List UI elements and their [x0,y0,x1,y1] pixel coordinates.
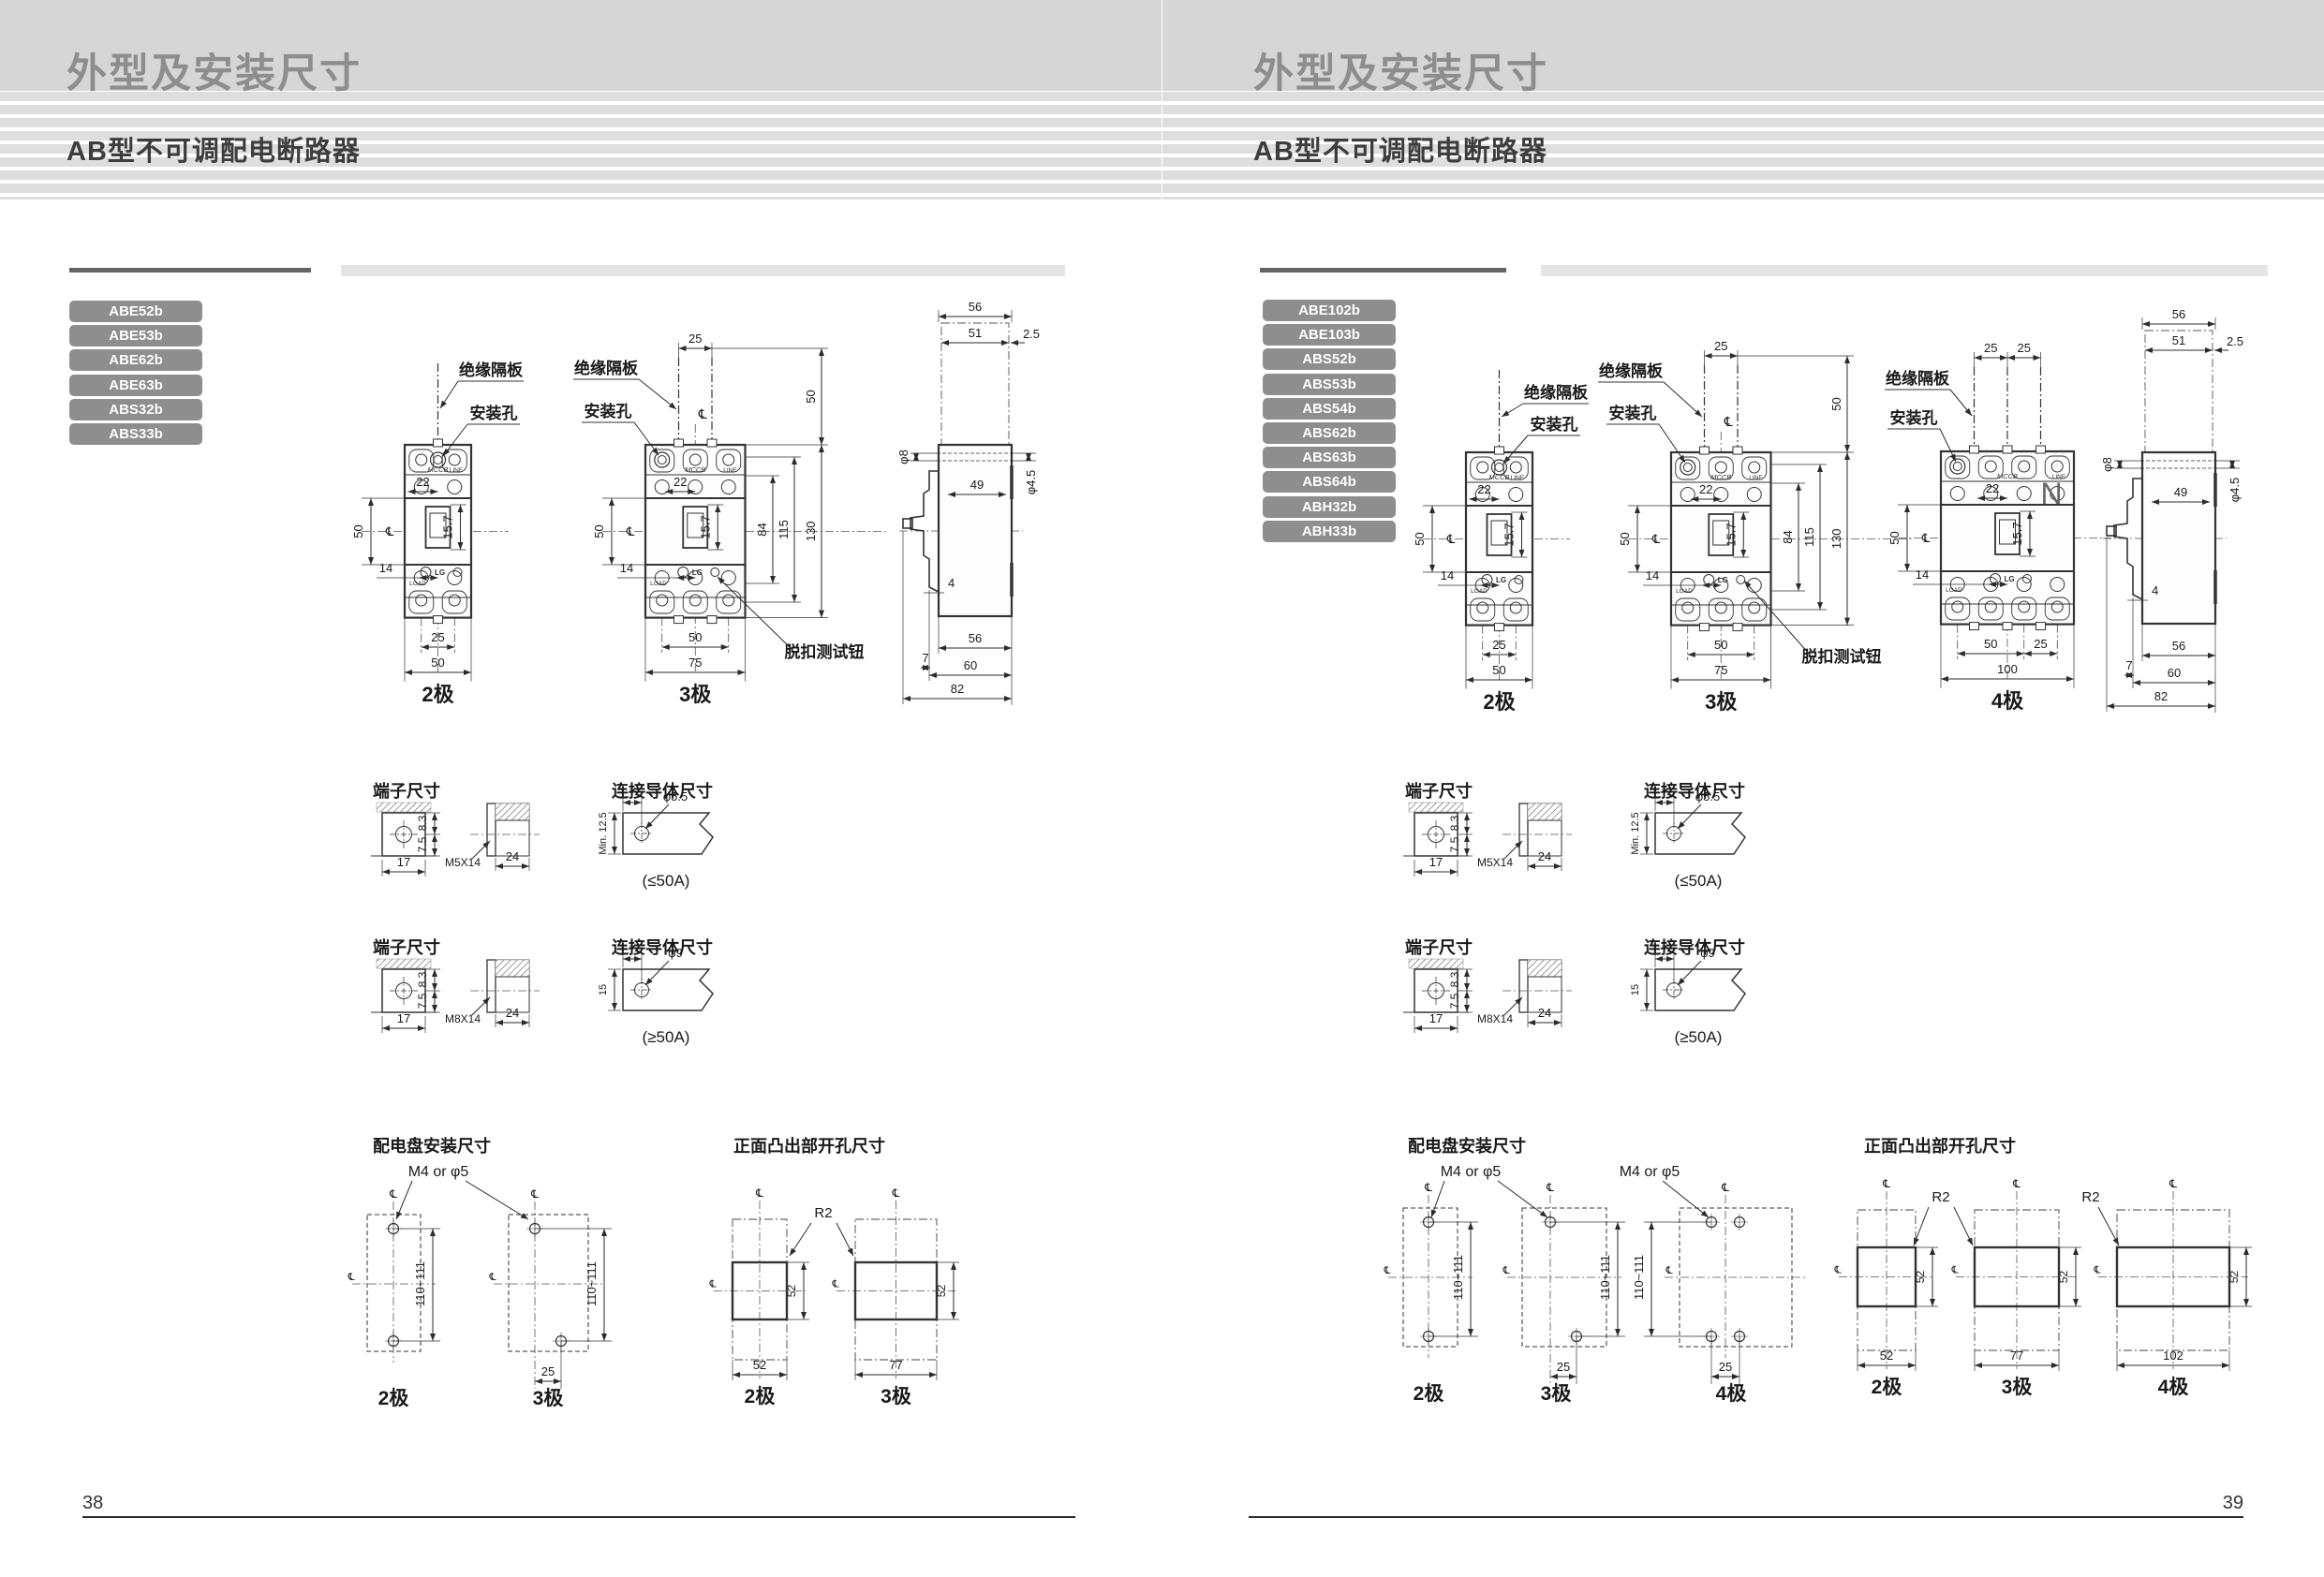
drawing-rect [1733,447,1742,454]
conductor-size-drawing: 7φ915(≥50A) [1630,943,1745,1046]
dim-label: 14 [1441,568,1454,582]
load-marking: LOAD [1471,588,1488,595]
breaker-front-4pole: 2525MCCBLINELOADLGN2250℄1415.750251004极 [1887,341,2111,713]
centerline-symbol: ℄ [831,1279,838,1290]
leader-line [1502,404,1523,417]
conductor-size-drawing: 7φ5.5Min. 12.5(≤50A) [1630,787,1745,890]
conductor-plate [1655,813,1745,854]
dim-label: 75 [688,656,702,670]
centerline-symbol: ℄ [698,406,707,421]
dim-label: 77 [889,1358,902,1372]
dim-label: 25 [1557,1360,1570,1374]
centerline-symbol: ℄ [530,1187,539,1201]
dim-label: 50 [1714,638,1727,652]
leader-line [1954,1207,1973,1245]
radius-label: R2 [1932,1189,1949,1205]
line-marking: LINE [450,467,464,474]
leader-line [1498,1181,1547,1217]
callout-label: 安装孔 [470,404,518,422]
hole-spec-label: φ9 [1700,946,1715,960]
panel-mount-2pole-left: ℄℄110~1112极 [347,1187,440,1409]
dim-label: 15.7 [1502,523,1517,546]
centerline-symbol: ℄ [2093,1265,2100,1276]
load-marking: LOAD [1946,587,1962,594]
drawing-rect [2145,331,2213,452]
conductor-size-drawing: 7φ915(≥50A) [598,943,713,1046]
callout-label: 绝缘隔板 [1886,369,1950,388]
dim-label: 15 [1630,984,1641,995]
drawing-rect [1495,624,1504,631]
dim-label: 75 [1714,663,1727,677]
conductor-plate [1655,969,1745,1010]
dim-label: 15.7 [441,515,455,538]
dim-label: 51 [969,326,982,340]
dim-label: 8.3 [416,815,429,831]
section-title: 端子尺寸 [373,937,440,957]
centerline-symbol: ℄ [708,1279,716,1290]
load-marking: LOAD [650,581,667,587]
screw-spec-label: M8X14 [1477,1012,1513,1025]
current-rating-note: (≥50A) [1675,1028,1723,1046]
dim-label: 84 [1781,530,1795,543]
breaker-body-side [2142,452,2215,624]
panel-mount-section-left: 配电盘安装尺寸M4 or φ5 [373,1136,528,1219]
drawing-rect [434,439,443,447]
dim-label: 110~111 [1632,1255,1646,1300]
centerline-symbol: ℄ [755,1186,763,1200]
current-rating-note: (≤50A) [643,872,690,890]
dim-label: 25 [2018,341,2031,355]
panel-mount-4pole: ℄℄110~111254极 [1632,1181,1807,1405]
drawing-rect [1495,447,1504,454]
screw-spec-label: M5X14 [1477,856,1513,869]
drawing-rect [1519,803,1528,856]
cutout-2pole-left: ℄℄52522极 [708,1186,809,1408]
centerline-symbol: ℄ [488,1272,496,1283]
pole-caption: 3极 [1705,690,1738,714]
drawing-rect [707,616,717,624]
pole-caption: 2极 [1414,1383,1445,1405]
dim-label: 7 [629,943,636,956]
dim-label: φ8 [896,450,910,464]
pole-caption: 4极 [1716,1383,1748,1405]
line-marking: LINE [1749,475,1763,481]
centerline-symbol: ℄ [385,524,394,538]
dim-label: 130 [1829,528,1843,549]
dim-label: 7 [922,651,928,665]
dim-label: 25 [1984,341,1997,355]
section-title: 端子尺寸 [373,781,440,801]
radius-label: R2 [2081,1189,2099,1205]
pole-caption: 2极 [1483,690,1516,714]
leader-line [1950,390,1972,416]
pole-caption: 2极 [745,1386,777,1408]
centerline-symbol: ℄ [2012,1177,2021,1190]
centerline-symbol: ℄ [892,1186,900,1200]
drawing-rect [674,439,684,447]
drawing-rect [1528,803,1562,820]
centerline-symbol: ℄ [1446,532,1456,546]
centerline-symbol: ℄ [1950,1265,1958,1276]
hole-spec-label: φ9 [668,946,683,960]
drawing-rect [674,616,684,624]
dim-label: 56 [2172,307,2185,321]
load-marking: LOAD [1676,588,1693,595]
dim-label: 52 [2057,1271,2070,1284]
dim-label: 22 [416,475,429,489]
callout-label: 绝缘隔板 [574,359,639,377]
centerline-symbol: ℄ [389,1187,397,1201]
dim-label: 17 [1429,1011,1443,1025]
terminal-size-drawing: 178.37.5M5X1424 [371,803,540,877]
dim-label: 14 [1916,567,1929,582]
drawing-rect [707,439,717,447]
mccb-marking: MCCB [1710,473,1731,481]
dim-label: 14 [379,561,392,575]
centerline-symbol: ℄ [1424,1181,1432,1194]
breaker-body-side [939,445,1012,616]
section-title: 配电盘安装尺寸 [373,1136,491,1156]
dim-label: 7 [1662,787,1668,800]
drawing-rect [2003,623,2012,630]
conductor-size-drawing: 7φ5.5Min. 12.5(≤50A) [598,787,713,890]
dim-label: 15 [598,984,609,995]
dim-label: 4 [948,576,955,590]
mccb-marking: MCCB [1488,473,1509,481]
centerline-symbol: ℄ [1921,531,1931,545]
dim-label: 25 [431,630,444,644]
panel-mount-3pole-right: ℄℄110~111253极 [1502,1181,1625,1405]
dim-label: 7.5 [1448,836,1461,852]
neutral-marking: N [2040,477,2062,510]
lg-logo: LG [2004,575,2014,583]
dim-label: 82 [951,682,964,696]
panel-mount-2pole-right: ℄℄110~1112极 [1383,1181,1478,1405]
drawing-rect [1409,803,1463,812]
dim-label: 7.5 [416,836,429,852]
mccb-marking: MCCB [685,465,705,474]
dim-label: 24 [506,849,519,863]
dim-label: 110~111 [585,1261,599,1306]
drawing-rect [496,803,529,820]
drawing-rect [941,323,1009,445]
dim-label: 2.5 [2227,334,2243,348]
drawing-rect [496,960,529,977]
drawing-rect [434,616,443,624]
dim-label: 7 [629,787,636,800]
side-profile [910,471,939,592]
pole-caption: 3极 [881,1386,912,1408]
screw-spec-label: M4 or φ5 [1620,1164,1680,1180]
drawing-rect [2036,623,2046,630]
drawing-rect [509,1215,588,1351]
dim-label: 110~111 [1451,1255,1465,1300]
dim-label: 50 [1887,531,1902,544]
dim-label: 15.7 [2010,522,2024,545]
current-rating-note: (≥50A) [643,1028,690,1046]
leader-line [396,1181,412,1219]
mccb-marking: MCCB [427,465,448,474]
dim-label: 50 [804,390,818,403]
conductor-plate [623,969,713,1010]
pole-caption: 4极 [1991,689,2024,713]
section-title: 正面凸出部开孔尺寸 [733,1136,885,1156]
dim-label: φ8 [2100,457,2114,472]
dim-label: 50 [431,656,444,670]
dim-label: 110~111 [413,1261,427,1306]
callout-label: 安装孔 [1531,415,1578,434]
dim-label: 22 [674,475,687,489]
dim-label: 49 [970,478,984,492]
dim-label: 25 [1714,339,1727,353]
drawing-rect [377,959,431,968]
dim-label: 14 [620,561,633,575]
dim-label: 50 [592,524,606,538]
dim-label: 52 [2228,1271,2241,1284]
cutout-section-right: 正面凸出部开孔尺寸R2R2 [1864,1136,2119,1245]
screw-spec-label: M8X14 [445,1012,481,1025]
terminal-size-drawing: 178.37.5M8X1424 [371,959,540,1033]
dim-label: 50 [1829,397,1843,410]
callout-label: 脱扣测试钮 [785,642,865,661]
screw-spec-label: M5X14 [445,856,481,869]
pole-caption: 3极 [679,683,712,706]
dim-label: 22 [1986,481,1999,495]
dim-label: 22 [1699,482,1712,496]
mccb-marking: MCCB [1997,472,2018,480]
centerline-symbol: ℄ [2169,1177,2177,1190]
lg-logo: LG [692,568,703,577]
catalog-spread: 外型及安装尺寸 AB型不可调配电断路器 ABE52bABE53bABE62bAB… [0,0,2324,1577]
dim-label: 51 [2172,333,2185,347]
dim-label: 60 [2168,666,2181,680]
load-marking: LOAD [409,581,426,587]
pole-caption: 3极 [1541,1383,1573,1405]
panel-mount-section-right: 配电盘安装尺寸M4 or φ5M4 or φ5 [1408,1136,1709,1217]
centerline-symbol: ℄ [1651,532,1661,546]
hole-spec-label: φ5.5 [663,789,688,803]
radius-label: R2 [814,1205,832,1221]
leader-line [639,379,676,409]
dim-label: 7.5 [416,993,429,1009]
dim-label: 7 [2125,658,2132,672]
lg-logo: LG [435,568,445,577]
dim-label: 130 [804,521,818,541]
centerline-symbol: ℄ [1833,1265,1841,1276]
centerline-symbol: ℄ [347,1272,354,1283]
drawing-rect [1970,446,1979,453]
terminal-size-drawing: 178.37.5M8X1424 [1403,959,1572,1033]
drawing-rect [1528,960,1562,977]
callout-label: 绝缘隔板 [1524,383,1589,402]
drawing-rect [1700,624,1710,631]
dim-label: 60 [964,658,977,672]
callouts-left-2pole: 绝缘隔板安装孔 [440,361,524,456]
dim-label: 56 [969,300,982,314]
drawing-rect [2003,446,2012,453]
centerline-symbol: ℄ [1665,1265,1672,1276]
screw-spec-label: M4 or φ5 [408,1164,469,1180]
screw-spec-label: M4 or φ5 [1441,1164,1502,1180]
lg-logo: LG [1496,576,1506,584]
leader-line [1664,382,1702,417]
conductor-plate [623,813,713,854]
leader-line [790,1223,811,1256]
callout-label: 安装孔 [1609,404,1657,422]
pole-caption: 4极 [2158,1377,2190,1398]
drawing-rect [1700,447,1710,454]
dim-label: 110~111 [1598,1255,1612,1300]
dim-label: 15.7 [698,515,712,538]
dim-label: 25 [541,1364,555,1378]
callout-label: 安装孔 [1890,408,1938,427]
leader-line [1663,1181,1709,1217]
dim-label: 49 [2174,485,2187,499]
pole-caption: 3极 [2002,1377,2034,1398]
centerline-symbol: ℄ [1502,1265,1509,1276]
drawing-rect [2036,446,2046,453]
dim-label: φ4.5 [2228,478,2242,503]
dim-label: 102 [2163,1349,2183,1363]
dim-label: 50 [688,630,702,644]
centerline-symbol: ℄ [1383,1265,1390,1276]
dim-label: 100 [1997,662,2018,676]
line-marking: LINE [723,467,737,474]
section-title: 端子尺寸 [1405,937,1473,957]
dim-label: 52 [935,1285,948,1298]
cutout-4pole-right: ℄℄521024极 [2093,1177,2252,1398]
centerline-symbol: ℄ [1546,1181,1554,1194]
dim-label: 115 [777,520,791,539]
dim-label: 15.7 [1724,523,1738,546]
dim-label: 7.5 [1448,993,1461,1009]
dim-label: 52 [753,1358,766,1372]
dim-label: 115 [1802,527,1816,547]
hole-spec-label: φ5.5 [1695,789,1721,803]
drawing-rect [1519,960,1528,1012]
dim-label: 25 [1719,1360,1732,1374]
terminal-size-drawing: 178.37.5M5X1424 [1403,803,1572,877]
dim-label: 84 [755,523,769,536]
dim-label: 50 [1984,637,1997,651]
pole-caption: 3极 [533,1388,565,1409]
panel-mount-3pole-left: ℄℄110~111253极 [488,1187,612,1409]
leader-line [1431,1181,1444,1217]
dim-label: 56 [969,631,982,645]
dim-label: 2.5 [1023,327,1040,341]
current-rating-note: (≤50A) [1675,872,1723,890]
pole-caption: 2极 [422,683,454,706]
dim-label: 52 [785,1285,798,1298]
dim-label: φ4.5 [1024,470,1038,495]
section-title: 连接导体尺寸 [612,937,713,957]
drawing-rect [1733,624,1742,631]
centerline-symbol: ℄ [1724,414,1733,429]
centerline-symbol: ℄ [626,524,635,538]
dim-label: 22 [1477,482,1490,496]
section-title: 端子尺寸 [1405,781,1473,801]
callout-label: 绝缘隔板 [459,361,524,379]
dim-label: 8.3 [1448,815,1461,831]
dim-label: 14 [1646,568,1659,582]
section-title: 连接导体尺寸 [1644,937,1745,957]
side-profile [2114,479,2142,599]
lg-logo: LG [1718,576,1728,584]
dim-label: 25 [688,332,702,346]
leader-line [836,1223,853,1256]
dim-label: 17 [1429,855,1443,869]
dim-label: 25 [2034,637,2047,651]
dim-label: 52 [1914,1271,1927,1284]
cutout-3pole-left: ℄℄52773极 [831,1186,959,1408]
pole-caption: 2极 [378,1388,410,1409]
pole-caption: 2极 [1872,1377,1903,1398]
cutout-2pole-right: ℄℄52522极 [1833,1177,1938,1398]
technical-drawings: MCCBLINELOADLG2250℄1415.725502极绝缘隔板安装孔25… [0,0,2324,1577]
dim-label: Min. 12.5 [1630,812,1641,854]
section-title: 正面凸出部开孔尺寸 [1864,1136,2016,1156]
drawing-rect [1970,623,1979,630]
callout-label: 安装孔 [585,402,632,420]
breaker-side-view: 56512.5φ849φ4.545676082 [2100,307,2243,713]
dim-label: 24 [1538,1006,1551,1020]
dim-label: 24 [1538,849,1551,863]
dim-label: 7 [1662,943,1668,956]
dim-label: 4 [2152,583,2158,597]
dim-label: 56 [2172,639,2185,653]
callouts-right-4pole: 绝缘隔板安装孔 [1885,369,1972,462]
dim-label: 17 [397,855,410,869]
dim-label: 82 [2154,689,2168,703]
dim-label: 50 [1618,532,1632,545]
drawing-rect [487,960,496,1012]
dim-label: 17 [397,1011,410,1025]
leader-line [2098,1207,2119,1245]
breaker-side-view: 56512.5φ849φ4.545676082 [896,300,1040,705]
drawing-rect [377,803,431,812]
leader-line [440,381,458,408]
dim-label: 25 [1492,638,1505,652]
cutout-3pole-right: ℄℄52773极 [1950,1177,2081,1398]
section-title: 配电盘安装尺寸 [1408,1136,1526,1156]
centerline-symbol: ℄ [1721,1181,1729,1194]
leader-line [466,1181,528,1219]
callout-label: 绝缘隔板 [1599,361,1664,380]
line-marking: LINE [1511,475,1525,481]
drawing-rect [1409,959,1463,968]
centerline-symbol: ℄ [1882,1177,1890,1190]
dim-label: 50 [1492,663,1505,677]
dim-label: 50 [351,524,365,538]
dim-label: 8.3 [416,971,429,987]
dim-label: 77 [2010,1349,2023,1363]
callout-label: 脱扣测试钮 [1802,647,1882,666]
dim-label: Min. 12.5 [598,812,609,854]
dim-label: 24 [506,1006,519,1020]
drawing-rect [487,803,496,856]
dim-label: 52 [1880,1349,1893,1363]
dim-label: 50 [1413,532,1427,545]
dim-label: 8.3 [1448,971,1461,987]
